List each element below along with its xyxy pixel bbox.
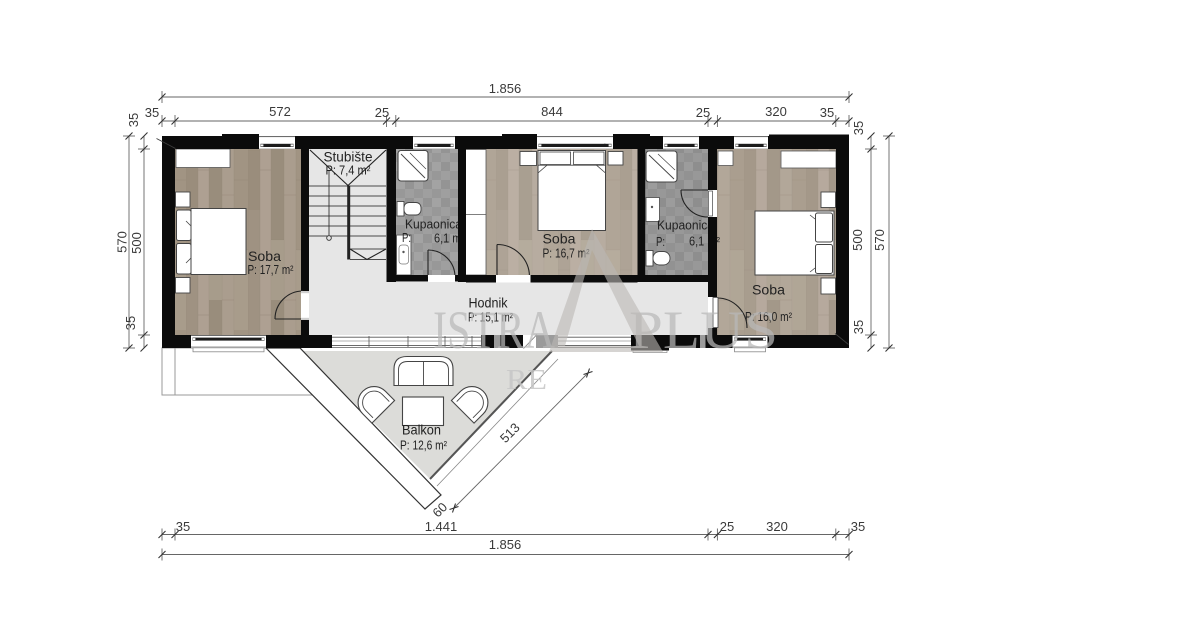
svg-text:P:: P: <box>402 231 411 245</box>
svg-text:P: 17,7 m²: P: 17,7 m² <box>248 263 294 277</box>
svg-text:35: 35 <box>126 113 141 127</box>
svg-text:572: 572 <box>269 104 291 119</box>
svg-text:35: 35 <box>176 519 190 534</box>
svg-text:Soba: Soba <box>543 231 576 247</box>
svg-text:Kupaonica: Kupaonica <box>405 218 462 232</box>
svg-text:1.856: 1.856 <box>489 81 522 96</box>
svg-text:35: 35 <box>123 316 138 330</box>
svg-text:500: 500 <box>129 232 144 254</box>
svg-text:ISTRA: ISTRA <box>433 300 555 360</box>
svg-text:844: 844 <box>541 104 563 119</box>
svg-text:1.441: 1.441 <box>425 519 458 534</box>
svg-text:570: 570 <box>872 229 887 251</box>
svg-text:P: 7,4 m²: P: 7,4 m² <box>326 164 371 178</box>
svg-text:35: 35 <box>820 105 834 120</box>
svg-text:25: 25 <box>375 105 389 120</box>
svg-text:25: 25 <box>720 519 734 534</box>
svg-text:P:: P: <box>656 235 665 249</box>
svg-text:35: 35 <box>145 105 159 120</box>
svg-text:1.856: 1.856 <box>489 537 522 552</box>
svg-text:500: 500 <box>850 229 865 251</box>
svg-text:35: 35 <box>851 519 865 534</box>
svg-text:Soba: Soba <box>752 282 785 298</box>
svg-text:320: 320 <box>766 519 788 534</box>
svg-text:35: 35 <box>851 320 866 334</box>
svg-text:RE: RE <box>506 365 547 396</box>
svg-text:25: 25 <box>696 105 710 120</box>
svg-text:P: 12,6 m²: P: 12,6 m² <box>400 439 447 453</box>
svg-text:Balkon: Balkon <box>402 422 441 438</box>
svg-text:Soba: Soba <box>248 248 281 264</box>
svg-text:570: 570 <box>115 231 130 253</box>
svg-text:320: 320 <box>765 104 787 119</box>
svg-text:Stubište: Stubište <box>324 149 373 165</box>
svg-text:Kupaonica: Kupaonica <box>657 219 714 233</box>
svg-text:35: 35 <box>851 121 866 135</box>
